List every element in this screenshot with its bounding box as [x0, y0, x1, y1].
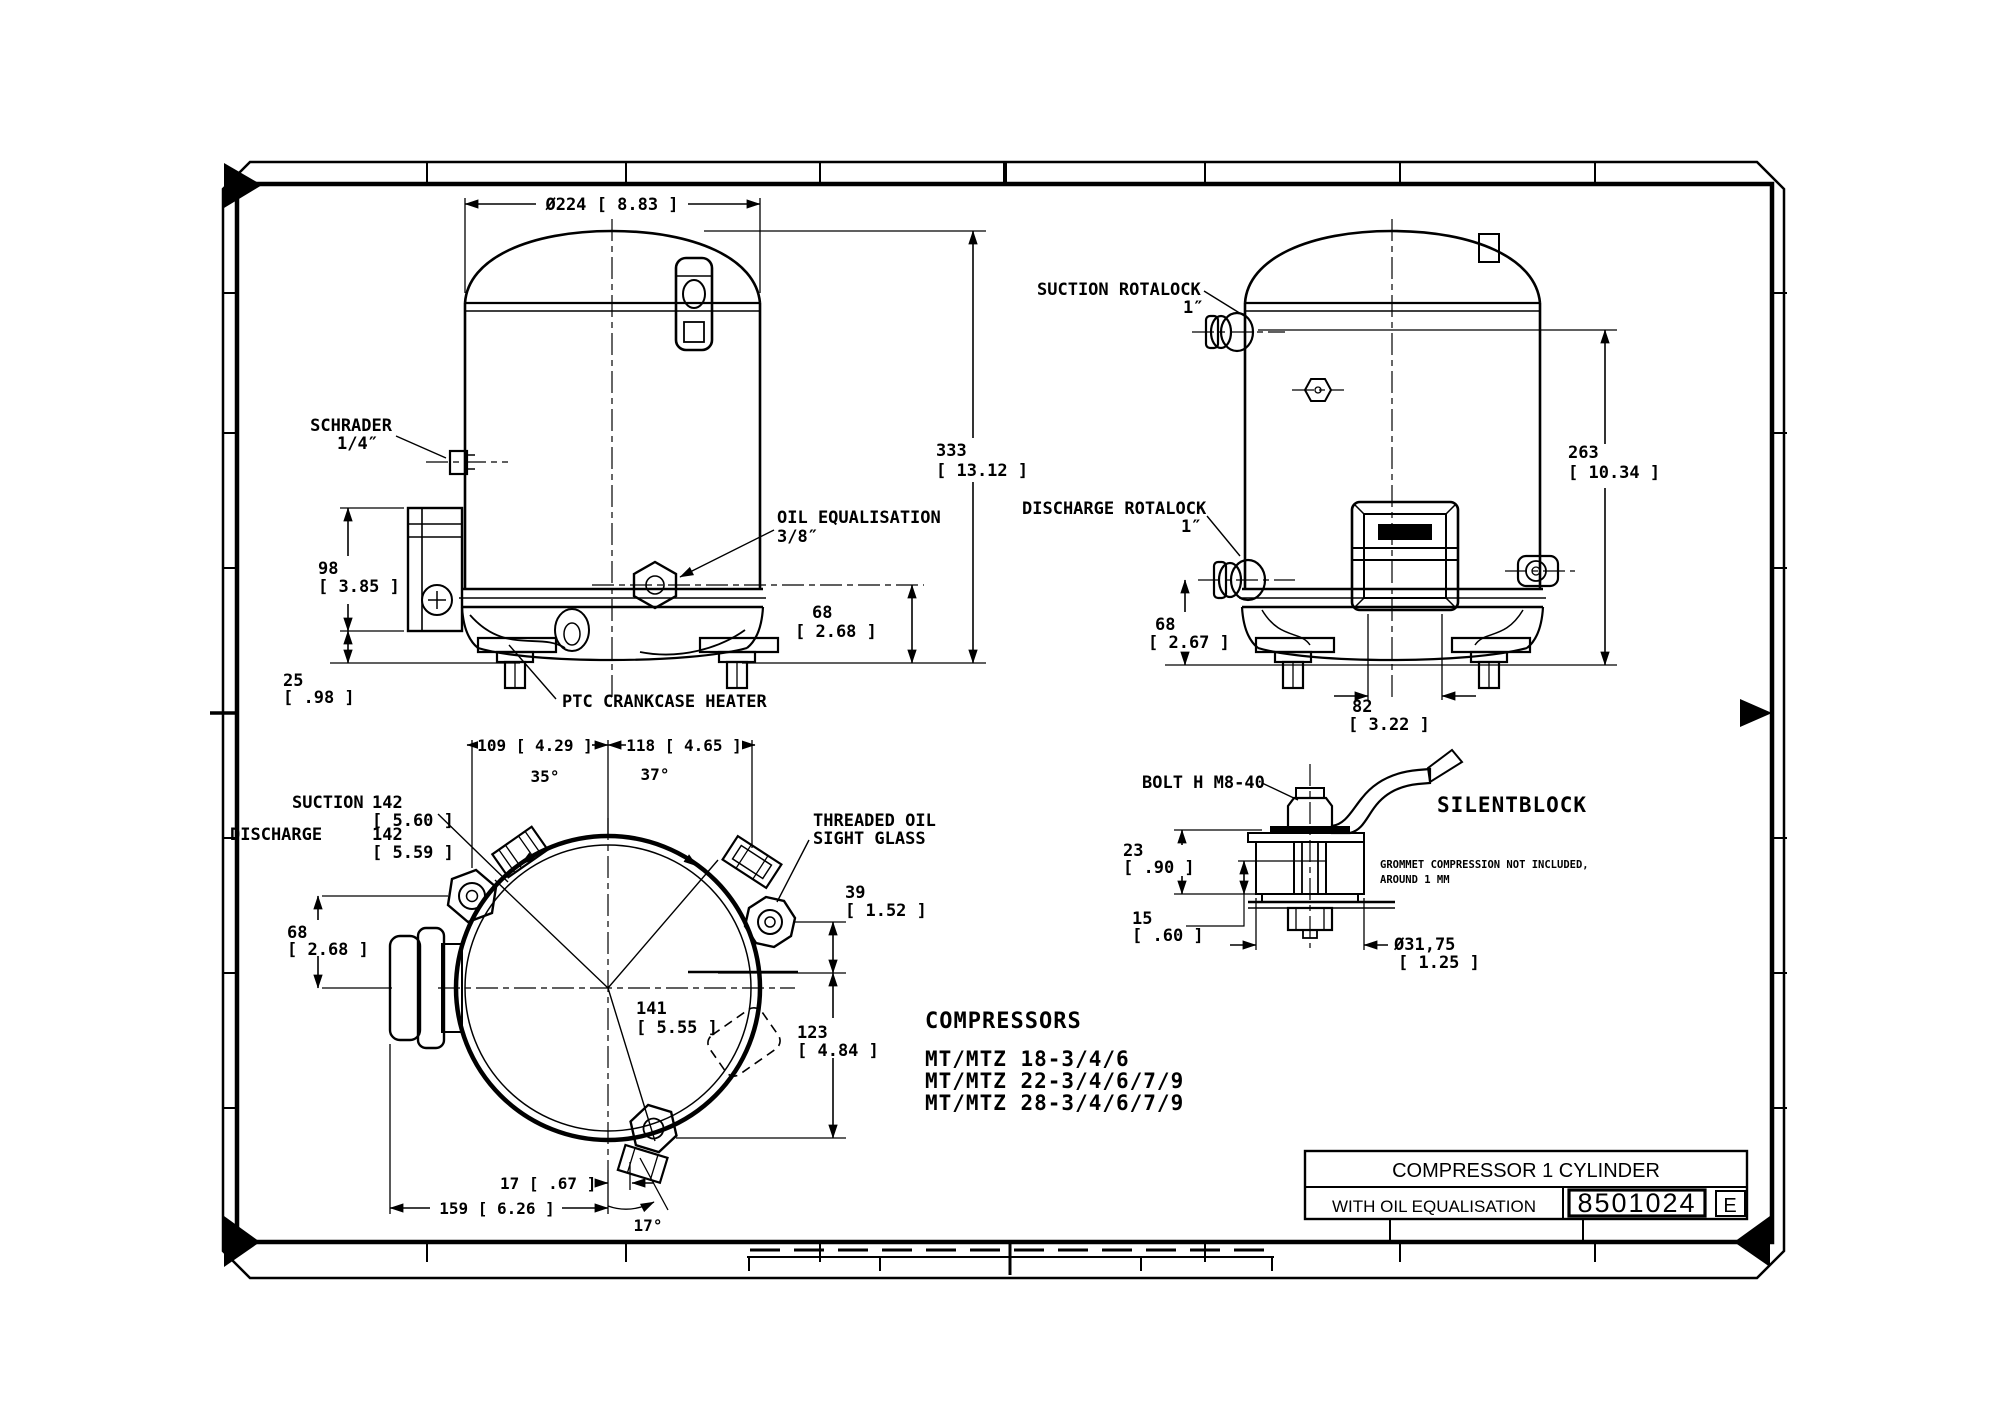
dim-23-inch: [ .90 ]: [1123, 858, 1195, 878]
label-oil-equalisation-size: 3/8″: [777, 527, 818, 547]
side-view-dimensions: 263 [ 10.34 ] 68 [ 2.67 ] 82 [ 3.22 ] SU…: [1022, 280, 1660, 735]
dim-15-inch: [ .60 ]: [1132, 926, 1204, 946]
dim-123-value: 123: [797, 1023, 828, 1043]
note-grommet-2: AROUND 1 MM: [1380, 874, 1450, 886]
compressor-model-3: MT/MTZ 28-3/4/6/7/9: [925, 1091, 1184, 1115]
front-feet: [478, 638, 778, 688]
dim-68-side-inch: [ 2.67 ]: [1148, 633, 1230, 653]
drawing-sheet: Ø224 [ 8.83 ] 333 [ 13.12 ] 68 [ 2.68 ] …: [0, 0, 2000, 1416]
dim-68-front-inch: [ 2.68 ]: [795, 622, 877, 642]
label-discharge-rotalock: DISCHARGE ROTALOCK: [1022, 499, 1207, 519]
terminal-box: [1352, 502, 1458, 610]
compressor-list: COMPRESSORS MT/MTZ 18-3/4/6 MT/MTZ 22-3/…: [925, 1009, 1184, 1115]
compressor-model-1: MT/MTZ 18-3/4/6: [925, 1047, 1130, 1071]
dim-263-inch: [ 10.34 ]: [1568, 463, 1660, 483]
bottom-valve-top: [616, 1101, 683, 1183]
dim-159: 159 [ 6.26 ]: [439, 1199, 555, 1218]
label-ptc-crankcase-heater: PTC CRANKCASE HEATER: [562, 692, 767, 712]
mounting-rail: [408, 508, 462, 631]
title-variant: WITH OIL EQUALISATION: [1332, 1197, 1536, 1216]
dim-68-side-value: 68: [1155, 615, 1175, 635]
corner-mark-bottom-left: [224, 1216, 260, 1267]
dim-grommet-dia: Ø31,75: [1393, 935, 1455, 955]
label-bolt: BOLT H M8-40: [1142, 773, 1265, 793]
note-grommet-1: GROMMET COMPRESSION NOT INCLUDED,: [1380, 859, 1589, 871]
dim-109: 109 [ 4.29 ]: [477, 736, 593, 755]
dim-123-inch: [ 4.84 ]: [797, 1041, 879, 1061]
dim-263-value: 263: [1568, 443, 1599, 463]
dim-17: 17 [ .67 ]: [500, 1174, 596, 1193]
suction-rotalock-valve: [1192, 313, 1285, 351]
dim-98-value: 98: [318, 559, 338, 579]
title-product: COMPRESSOR 1 CYLINDER: [1392, 1160, 1660, 1182]
drawing-canvas: Ø224 [ 8.83 ] 333 [ 13.12 ] 68 [ 2.68 ] …: [0, 0, 2000, 1416]
front-view-dimensions: Ø224 [ 8.83 ] 333 [ 13.12 ] 68 [ 2.68 ] …: [283, 192, 1028, 712]
dim-discharge-142: 142: [372, 825, 403, 845]
dim-68-top-inch: [ 2.68 ]: [287, 940, 369, 960]
silentblock-detail: BOLT H M8-40 SILENTBLOCK GROMMET COMPRES…: [1123, 750, 1589, 973]
dim-grommet-dia-inch: [ 1.25 ]: [1398, 953, 1480, 973]
dim-141-value: 141: [636, 999, 667, 1019]
title-block: COMPRESSOR 1 CYLINDER WITH OIL EQUALISAT…: [1305, 1151, 1747, 1242]
corner-mark-bottom-right: [1734, 1216, 1770, 1267]
dim-39-value: 39: [845, 883, 865, 903]
dim-diameter-224: Ø224 [ 8.83 ]: [544, 195, 678, 215]
label-suction-rotalock: SUCTION ROTALOCK: [1037, 280, 1202, 300]
dim-suction-142: 142: [372, 793, 403, 813]
revision-letter: E: [1723, 1195, 1736, 1217]
compressor-model-2: MT/MTZ 22-3/4/6/7/9: [925, 1069, 1184, 1093]
dim-141-inch: [ 5.55 ]: [636, 1018, 718, 1038]
label-oil-equalisation: OIL EQUALISATION: [777, 508, 941, 528]
side-feet: [1256, 638, 1530, 688]
dim-98-inch: [ 3.85 ]: [318, 577, 400, 597]
label-threaded-oil-sight-glass-1: THREADED OIL: [813, 811, 936, 831]
dim-discharge-142-inch: [ 5.59 ]: [372, 843, 454, 863]
label-schrader-size: 1/4″: [337, 434, 378, 454]
discharge-rotalock-valve: [1198, 560, 1295, 600]
dim-angle-17: 17°: [634, 1216, 663, 1235]
label-silentblock: SILENTBLOCK: [1437, 793, 1587, 817]
drawing-number: 8501024: [1577, 1188, 1696, 1218]
label-discharge-top: DISCHARGE: [230, 825, 322, 845]
suction-discharge-ports-top: [448, 827, 548, 922]
top-view-dimensions: 109 [ 4.29 ] 118 [ 4.65 ] 35° 37° SUCTIO…: [230, 736, 936, 1235]
label-threaded-oil-sight-glass-2: SIGHT GLASS: [813, 829, 926, 849]
oil-sight-glass-top: [745, 897, 795, 947]
label-schrader: SCHRADER: [310, 416, 393, 436]
dim-118: 118 [ 4.65 ]: [626, 736, 742, 755]
dim-angle-37: 37°: [641, 765, 670, 784]
dim-333-value: 333: [936, 441, 967, 461]
hidden-sight-glass-outline: [704, 1004, 784, 1080]
front-view: [408, 219, 778, 700]
graduation-bar: [747, 1244, 1274, 1275]
dim-25-inch: [ .98 ]: [283, 688, 355, 708]
label-discharge-rotalock-size: 1″: [1181, 517, 1201, 537]
dim-82-value: 82: [1352, 697, 1372, 717]
silentblock-grommet: [1248, 833, 1364, 902]
label-suction-rotalock-size: 1″: [1183, 298, 1203, 318]
silentblock-bracket: [1332, 750, 1462, 833]
compressor-list-heading: COMPRESSORS: [925, 1009, 1082, 1034]
dim-39-inch: [ 1.52 ]: [845, 901, 927, 921]
label-suction-top: SUCTION: [292, 793, 364, 813]
top-view: [390, 818, 798, 1183]
dim-68-front-value: 68: [812, 603, 832, 623]
dim-333-inch: [ 13.12 ]: [936, 461, 1028, 481]
dim-angle-35: 35°: [531, 767, 560, 786]
side-view: [1192, 219, 1575, 700]
center-arrow-right-border: [1740, 699, 1772, 727]
schrader-port-side: [1292, 379, 1344, 401]
dim-82-inch: [ 3.22 ]: [1348, 715, 1430, 735]
